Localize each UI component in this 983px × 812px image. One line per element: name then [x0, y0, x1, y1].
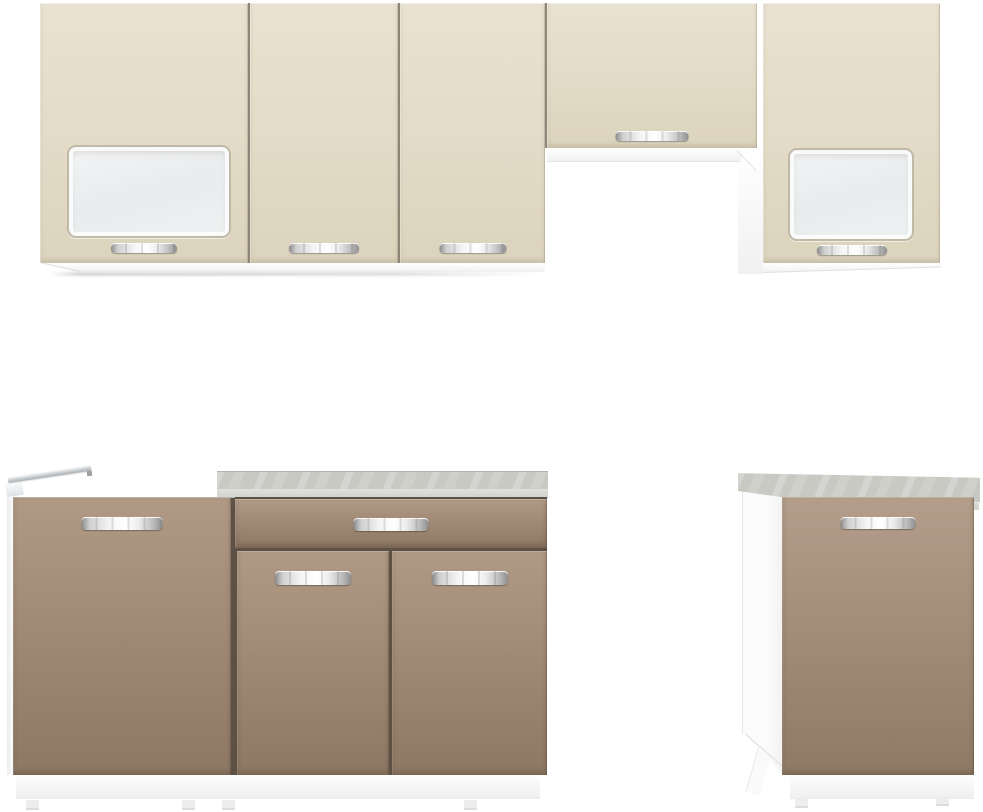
- base-door: [392, 551, 547, 775]
- cabinet-foot: [26, 800, 39, 810]
- base-unit-single: [782, 497, 974, 775]
- hood-unit-underside: [547, 148, 758, 162]
- door-handle: [432, 571, 508, 585]
- wall-unit-glass-right: [763, 3, 940, 263]
- appliance-rail-front: [5, 482, 24, 497]
- door-handle: [289, 243, 359, 253]
- door-handle: [616, 131, 689, 141]
- wall-door-plain-b: [400, 3, 545, 263]
- drawer-front: [235, 499, 547, 548]
- glass-panel: [67, 145, 231, 238]
- plinth: [16, 775, 540, 799]
- cabinet-foot: [182, 800, 195, 810]
- door-handle: [439, 243, 506, 253]
- glass-panel: [788, 148, 914, 241]
- door-handle: [111, 243, 177, 253]
- wall-unit-side-panel: [738, 148, 763, 274]
- cabinet-foot: [222, 800, 235, 810]
- wall-door-plain-a: [250, 3, 398, 263]
- door-handle: [817, 245, 887, 255]
- worktop-surface: [217, 471, 548, 490]
- appliance-rail-tip: [87, 471, 93, 477]
- wall-unit-shadow: [48, 272, 543, 276]
- base-door: [13, 497, 231, 775]
- cabinet-foot: [936, 796, 949, 806]
- wall-unit-over-hood: [547, 3, 757, 148]
- cabinet-foot: [795, 798, 808, 808]
- base-unit-appliance: [7, 497, 235, 775]
- kitchen-set-image: [0, 0, 983, 812]
- appliance-rail: [8, 465, 92, 483]
- door-handle: [275, 571, 351, 585]
- base-unit-drawer: [235, 497, 547, 775]
- wall-door-glass-left: [40, 3, 248, 263]
- cabinet-foot: [464, 800, 477, 810]
- drawer-handle: [354, 518, 429, 531]
- base-side-panel: [742, 490, 782, 777]
- door-handle: [841, 517, 916, 529]
- door-handle: [82, 517, 163, 530]
- wall-unit-left-group: [40, 3, 545, 263]
- wall-unit-underside: [40, 263, 545, 272]
- base-door: [237, 551, 389, 775]
